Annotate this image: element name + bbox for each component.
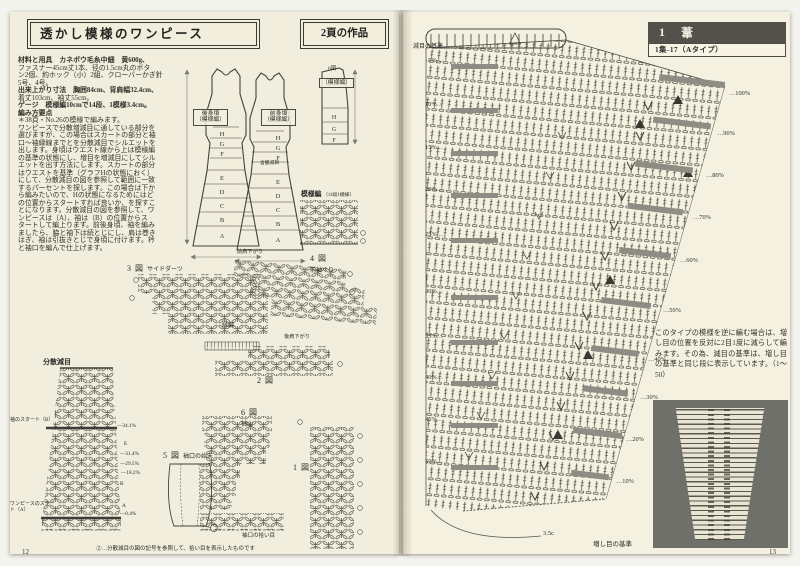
decrease-percent-label: —34.1%	[117, 423, 136, 429]
front-bodice-label: 前身頃 （模様編）	[261, 109, 296, 126]
left-percent-label: 20%…	[403, 186, 443, 193]
fig2-edge-chart	[205, 342, 333, 376]
figure4-label: 4 図 前袖ぐり	[310, 253, 334, 274]
left-percent-label: 10%…	[403, 101, 443, 108]
dress-start-label: ワンピースのスタート（A）	[10, 502, 56, 513]
left-percent-label: 50%…	[403, 458, 443, 465]
svg-text:G: G	[332, 127, 337, 133]
right-percent-label: …10%	[616, 478, 634, 485]
decrease-marker-bar	[451, 151, 498, 156]
figure1-label: 1 図	[293, 462, 310, 473]
svg-text:H: H	[332, 115, 337, 121]
decrease-percent-label: —18.2%	[121, 470, 140, 476]
bottom-measure-bracket	[431, 510, 541, 538]
figure2-label: 2 図	[257, 375, 274, 386]
pattern-stitch-swatch	[300, 200, 365, 244]
decrease-marker-bar	[451, 465, 498, 470]
page-number-left: 12	[22, 548, 29, 556]
svg-text:E: E	[276, 179, 280, 186]
decrease-marker-bar	[451, 238, 498, 243]
side-decrease-note: 含脇減目	[260, 161, 279, 167]
cuff-pickup-chart	[200, 513, 284, 530]
right-percent-label: …90%	[717, 130, 735, 137]
svg-text:A: A	[220, 233, 225, 240]
back-shoulder-note: 後肩下がり	[284, 335, 310, 341]
svg-text:H: H	[220, 131, 225, 138]
left-percent-label: 25%…	[403, 231, 443, 238]
fig6-sleeve-cap-chart	[200, 416, 272, 510]
decrease-marker-bar	[451, 340, 498, 345]
decrease-percent-label: —0.4%	[120, 511, 136, 517]
svg-text:H: H	[276, 135, 281, 142]
svg-text:F: F	[332, 138, 336, 144]
front-shoulder-note: 前肩下がり	[237, 250, 263, 256]
schematic-back-section-letters: H G F E D C B A	[220, 131, 225, 240]
left-percent-label: 5%…	[403, 57, 443, 64]
book-scan: 透かし模様のワンピース 2頁の作品 材料と用具 カネボウ毛糸中細 黄600g、 …	[0, 0, 800, 566]
left-percent-label: 15%…	[403, 144, 443, 151]
sleeve-start-label: 袖のスタート（B）	[10, 418, 56, 424]
svg-text:D: D	[276, 193, 281, 200]
left-percent-label: 40%…	[403, 374, 443, 381]
sleeve-label: （模様編）	[319, 78, 354, 88]
pattern-diagrams: H G F E D C B A H G F E	[10, 12, 399, 554]
chart-footnote: ②…分散減目の図の記号を参照して、拾い目を表示したものです	[96, 546, 255, 552]
decrease-percent-label: —29.5%	[120, 461, 139, 467]
edge-stitch-label: 縁編	[222, 323, 234, 330]
schematic-sleeve-letters: H G F	[332, 115, 337, 144]
left-percent-label: 45%…	[403, 416, 443, 423]
right-percent-label: …60%	[680, 257, 698, 264]
svg-text:F: F	[220, 151, 224, 158]
svg-text:G: G	[276, 145, 281, 152]
figure3-label: 3 図 サイドダーツ	[127, 263, 183, 274]
right-percent-label: …20%	[626, 436, 644, 443]
cuff-pickup-label: 袖口の拾い目	[242, 533, 275, 539]
svg-text:A: A	[276, 237, 281, 244]
svg-text:G: G	[220, 141, 225, 148]
decrease-marker-bar	[451, 108, 498, 113]
svg-text:E: E	[220, 175, 224, 182]
swatch-photo	[653, 400, 788, 548]
left-percent-label: 35%…	[403, 333, 443, 340]
back-bodice-label: 後身頃 （模様編）	[193, 109, 228, 126]
left-page: 透かし模様のワンピース 2頁の作品 材料と用具 カネボウ毛糸中細 黄600g、 …	[10, 12, 399, 554]
decrease-marker-bar	[451, 381, 498, 386]
right-percent-label: …70%	[693, 214, 711, 221]
right-percent-label: …100%	[729, 90, 750, 97]
increase-axis-label: 増し目の基準	[593, 541, 632, 548]
decrease-axis-label: 減目の基準	[413, 44, 443, 51]
decrease-letter-label: E	[124, 441, 127, 447]
swatch-label: 模様編 （14段1模様）	[301, 191, 354, 199]
right-page: 1 葦 1集-17（Aタイプ）	[403, 12, 790, 554]
fig6-pointer-label: 6図	[328, 66, 336, 72]
openwork-column	[708, 408, 714, 540]
page-number-right: 13	[769, 548, 776, 556]
svg-text:C: C	[276, 207, 280, 214]
figure5-label: 5 図 袖口の始末	[163, 450, 213, 461]
decrease-percent-label: —31.4%	[120, 451, 139, 457]
svg-text:B: B	[220, 217, 225, 224]
dispersed-decrease-title: 分散減目	[43, 358, 71, 366]
pattern-note-text: このタイプの模様を逆に編む場合は、増し目の位置を反対に2目1度に減らして編みます…	[655, 328, 787, 380]
crochet-swatch-image	[666, 408, 774, 540]
left-percent-label: 30%…	[403, 288, 443, 295]
decrease-marker-bar	[451, 423, 498, 428]
bottom-measure-label: 3.5c	[543, 530, 554, 537]
openwork-column	[724, 408, 730, 540]
svg-text:D: D	[220, 189, 225, 196]
decrease-marker-bar	[451, 64, 498, 69]
fig1-strip-chart	[310, 427, 362, 549]
decrease-marker-bar	[451, 295, 498, 300]
fig3-side-dart-chart	[138, 274, 268, 334]
svg-text:B: B	[276, 221, 281, 228]
decrease-letter-label: A	[122, 503, 126, 509]
schematic-back-bodice	[193, 69, 259, 246]
decrease-letter-label: B	[120, 481, 124, 487]
right-percent-label: …80%	[706, 172, 724, 179]
decrease-marker-bar	[451, 193, 498, 198]
figure6-label: 6 図 袖山	[241, 407, 258, 428]
schematic-front-section-letters: H G F E D C B A	[276, 135, 281, 244]
svg-text:C: C	[220, 203, 224, 210]
right-percent-label: …50%	[663, 307, 681, 314]
